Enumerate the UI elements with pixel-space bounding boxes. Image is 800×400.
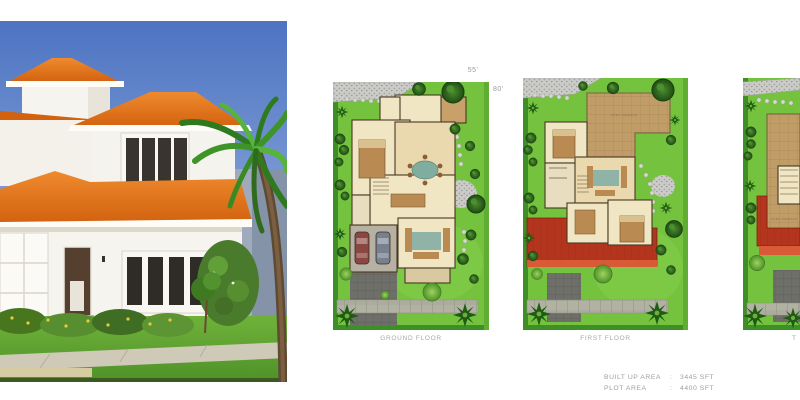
built-up-area-row: BUILT UP AREA:3445 SFT bbox=[604, 372, 714, 383]
svg-text:OPEN TERRACE: OPEN TERRACE bbox=[611, 113, 637, 117]
terrace-floor-plan: OPEN TERRACE bbox=[743, 78, 800, 330]
villa-photo bbox=[0, 21, 287, 382]
caption-first-floor: FIRST FLOOR bbox=[523, 335, 688, 342]
driveway bbox=[547, 273, 581, 322]
plot-width-label: 55' bbox=[460, 67, 486, 74]
paving-band bbox=[337, 300, 478, 313]
first-floor-plan: OPEN TERRACE bbox=[523, 78, 688, 330]
svg-text:OPEN TERRACE: OPEN TERRACE bbox=[771, 217, 797, 221]
built-up-area-value: 3445 SFT bbox=[680, 372, 714, 383]
area-summary: BUILT UP AREA:3445 SFT PLOT AREA:4400 SF… bbox=[604, 372, 714, 394]
driveway bbox=[350, 270, 397, 326]
french-window bbox=[0, 233, 48, 321]
wall-lamp bbox=[102, 256, 105, 262]
plot-area-label: PLOT AREA bbox=[604, 383, 670, 394]
plot-area-row: PLOT AREA:4400 SFT bbox=[604, 383, 714, 394]
caption-ground-floor: GROUND FLOOR bbox=[333, 335, 489, 342]
entry-door bbox=[58, 247, 96, 323]
plot-area-value: 4400 SFT bbox=[680, 383, 714, 394]
ground-floor-plan bbox=[333, 82, 489, 330]
stair-room bbox=[778, 166, 800, 204]
gravel-patch bbox=[651, 175, 675, 197]
plot-depth-label: 80' bbox=[493, 86, 504, 93]
built-up-area-label: BUILT UP AREA bbox=[604, 372, 670, 383]
caption-terrace-floor-clipped: T bbox=[792, 335, 800, 342]
brochure-page: OPEN TERRACE bbox=[0, 0, 800, 400]
paving-band bbox=[527, 300, 668, 313]
